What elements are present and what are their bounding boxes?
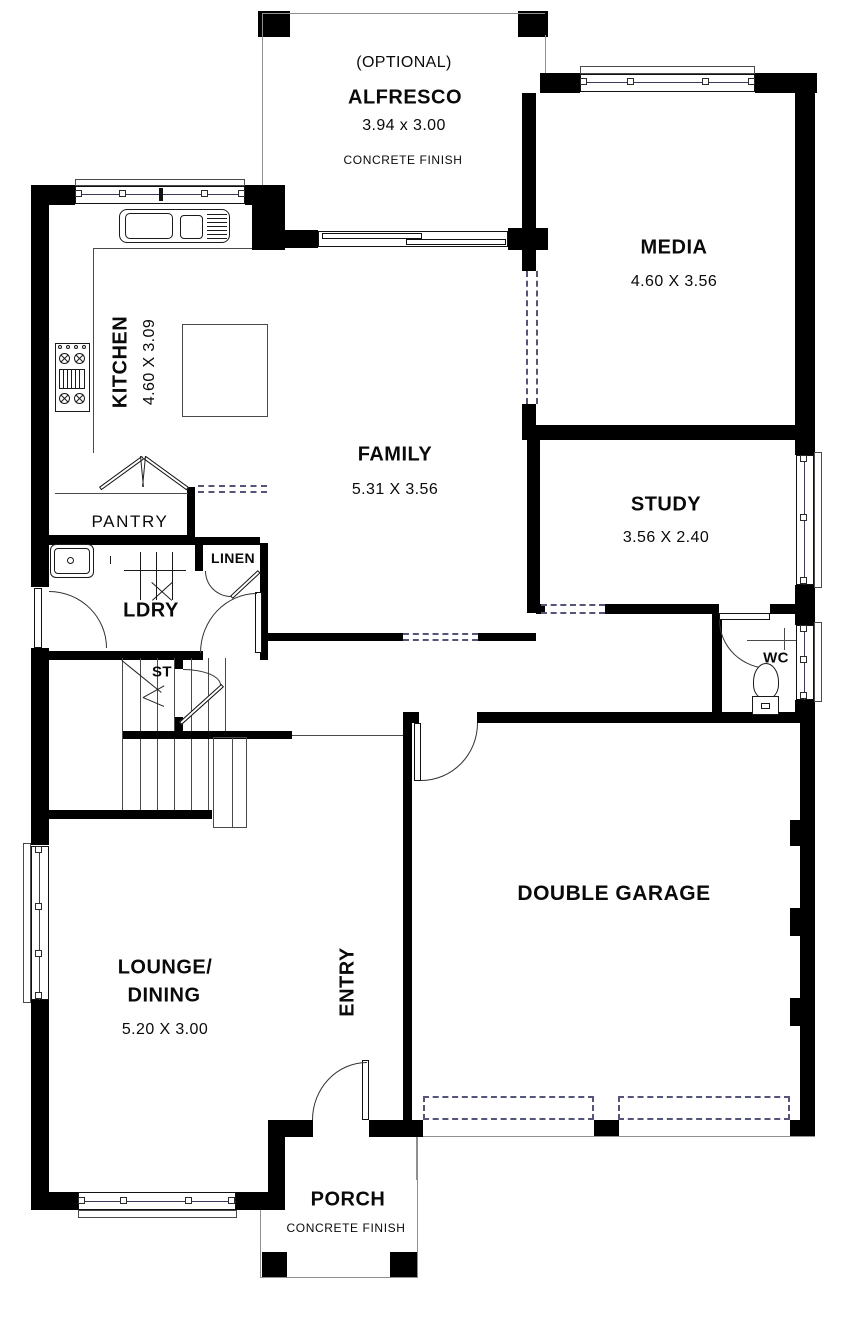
- wall-segment: [800, 723, 815, 1120]
- window-mullion: [35, 950, 42, 957]
- cooktop-icon: [55, 343, 90, 412]
- wall-segment: [790, 820, 800, 846]
- window-mullion: [119, 190, 126, 197]
- wall-segment: [605, 604, 719, 614]
- slab-edge-line: [417, 1137, 418, 1278]
- door-leaf: [99, 456, 144, 490]
- window-glass-line: [39, 846, 40, 1000]
- lounge-dining-label-line2: DINING: [128, 985, 201, 1008]
- outline-line: [174, 658, 175, 731]
- wall-segment: [540, 73, 580, 93]
- outline-line: [292, 735, 403, 736]
- wall-segment: [236, 1192, 268, 1210]
- window-mullion: [238, 190, 245, 197]
- cased-opening-dashed: [198, 485, 267, 493]
- cased-opening-dashed: [526, 271, 538, 404]
- wall-segment: [268, 633, 403, 641]
- window-mullion: [800, 577, 807, 584]
- panel: [414, 723, 421, 781]
- door-swing-arc: [312, 1062, 367, 1120]
- window-mullion: [78, 1197, 85, 1204]
- wall-segment: [31, 205, 49, 587]
- wall-segment: [790, 998, 800, 1026]
- window-mullion: [580, 78, 587, 85]
- slab-edge-line: [262, 13, 545, 14]
- window-glass-line: [78, 1201, 236, 1202]
- garage-door-dashed: [423, 1096, 594, 1120]
- window-mullion: [800, 514, 807, 521]
- wall-segment: [31, 185, 75, 205]
- window-mullion: [185, 1197, 192, 1204]
- wall-segment: [770, 604, 797, 614]
- outline-line: [122, 658, 123, 810]
- wall-segment: [369, 1120, 423, 1137]
- window-mullion: [75, 190, 82, 197]
- wall-segment: [268, 1120, 313, 1137]
- window-glass-line: [580, 82, 755, 83]
- wall-segment: [527, 440, 540, 613]
- porch-finish-note: CONCRETE FINISH: [286, 1221, 405, 1235]
- wall-segment: [755, 73, 817, 93]
- window-mullion: [228, 1197, 235, 1204]
- window-mullion: [748, 78, 755, 85]
- panel: [580, 74, 755, 92]
- box-outline: [814, 622, 822, 702]
- wall-segment: [790, 1120, 815, 1137]
- wall-segment: [268, 230, 318, 248]
- wall-segment: [403, 723, 412, 1120]
- slab-edge-line: [423, 1136, 815, 1137]
- wall-segment: [478, 633, 536, 641]
- door-swing-arc: [200, 593, 257, 653]
- outline-line: [157, 739, 158, 810]
- floor-plan: (OPTIONAL) ALFRESCO 3.94 x 3.00 CONCRETE…: [0, 0, 860, 1324]
- window-mullion: [800, 692, 807, 699]
- window-mullion: [627, 78, 634, 85]
- wall-segment: [122, 731, 292, 739]
- alfresco-optional-tag: (OPTIONAL): [356, 54, 452, 72]
- door-leaf: [144, 456, 189, 490]
- wall-segment: [31, 1000, 49, 1192]
- wall-segment: [195, 545, 203, 571]
- kitchen-sink-icon: [119, 209, 230, 243]
- wall-segment: [795, 93, 815, 455]
- box-outline: [78, 1210, 237, 1218]
- box-outline: [182, 324, 268, 417]
- lounge-dining-dims: 5.20 X 3.00: [122, 1021, 208, 1039]
- slab-edge-line: [545, 35, 546, 73]
- window-meeting-stile: [159, 188, 163, 201]
- slab-edge-line: [260, 1210, 261, 1278]
- window-mullion: [201, 190, 208, 197]
- wall-segment: [403, 712, 419, 723]
- wall-segment: [795, 585, 815, 625]
- box-outline: [75, 179, 245, 186]
- door-swing-arc: [183, 669, 221, 685]
- outline-line: [784, 628, 785, 650]
- outline-line: [140, 658, 141, 731]
- laundry-label: LDRY: [123, 600, 179, 623]
- panel: [719, 613, 770, 620]
- cased-opening-dashed: [403, 633, 478, 641]
- window-mullion: [800, 455, 807, 462]
- entry-label: ENTRY: [337, 947, 360, 1017]
- wall-segment: [31, 1192, 78, 1210]
- outline-line: [225, 658, 226, 731]
- panel: [34, 588, 42, 648]
- wall-segment: [31, 648, 49, 845]
- media-dims: 4.60 X 3.56: [631, 273, 717, 291]
- line: [143, 697, 165, 707]
- window-mullion: [800, 656, 807, 663]
- media-label: MEDIA: [641, 237, 708, 260]
- laundry-tub-icon: [50, 544, 94, 578]
- wall-segment: [262, 1252, 287, 1278]
- study-label: STUDY: [631, 494, 701, 517]
- outline-line: [55, 493, 188, 494]
- lounge-dining-label-line1: LOUNGE/: [118, 957, 213, 980]
- window-mullion: [702, 78, 709, 85]
- door-swing-arc: [421, 723, 478, 781]
- door-swing-arc: [205, 571, 231, 597]
- wall-segment: [49, 810, 212, 819]
- panel: [406, 239, 506, 245]
- window-mullion: [35, 846, 42, 853]
- outline-line: [93, 248, 252, 249]
- pantry-label: PANTRY: [92, 512, 169, 532]
- garage-label: DOUBLE GARAGE: [517, 882, 710, 906]
- slab-edge-line: [262, 13, 263, 185]
- outline-line: [174, 739, 175, 810]
- wall-segment: [522, 93, 536, 271]
- outline-line: [208, 739, 209, 810]
- wall-segment: [536, 425, 798, 440]
- door-swing-arc: [49, 591, 107, 648]
- door-leaf: [179, 684, 224, 725]
- alfresco-finish-note: CONCRETE FINISH: [343, 153, 462, 167]
- toilet-icon: [750, 660, 781, 718]
- kitchen-dims: 4.60 X 3.09: [141, 319, 159, 405]
- box-outline: [814, 452, 822, 588]
- panel: [31, 846, 49, 1000]
- window-mullion: [35, 992, 42, 999]
- stairs-label: ST: [152, 664, 172, 681]
- study-dims: 3.56 X 2.40: [623, 529, 709, 547]
- slab-edge-line: [260, 1277, 418, 1278]
- wall-segment: [390, 1252, 417, 1278]
- wall-segment: [245, 185, 285, 205]
- garage-door-dashed: [618, 1096, 790, 1120]
- alfresco-dims: 3.94 x 3.00: [362, 117, 446, 135]
- window-mullion: [120, 1197, 127, 1204]
- wall-segment: [594, 1120, 619, 1137]
- window-mullion: [35, 903, 42, 910]
- box-outline: [23, 843, 31, 1003]
- wall-segment: [790, 908, 800, 936]
- slab-edge-line: [416, 1137, 417, 1180]
- kitchen-label: KITCHEN: [110, 316, 133, 408]
- porch-label: PORCH: [311, 1189, 386, 1212]
- cased-opening-dashed: [541, 604, 605, 614]
- wall-segment: [522, 404, 536, 440]
- window-mullion: [800, 625, 807, 632]
- alfresco-label: ALFRESCO: [348, 87, 462, 110]
- box-outline: [213, 737, 247, 828]
- outline-line: [191, 739, 192, 810]
- outline-line: [140, 739, 141, 810]
- wc-label: WC: [763, 650, 789, 667]
- box-outline: [580, 66, 755, 74]
- wall-segment: [518, 11, 548, 37]
- line: [142, 456, 146, 487]
- family-dims: 5.31 X 3.56: [352, 481, 438, 499]
- laundry-hatch: [110, 550, 190, 602]
- family-label: FAMILY: [358, 444, 433, 467]
- wall-segment: [175, 655, 183, 669]
- outline-line: [93, 248, 94, 453]
- wall-segment: [195, 537, 260, 545]
- linen-label: LINEN: [211, 550, 255, 566]
